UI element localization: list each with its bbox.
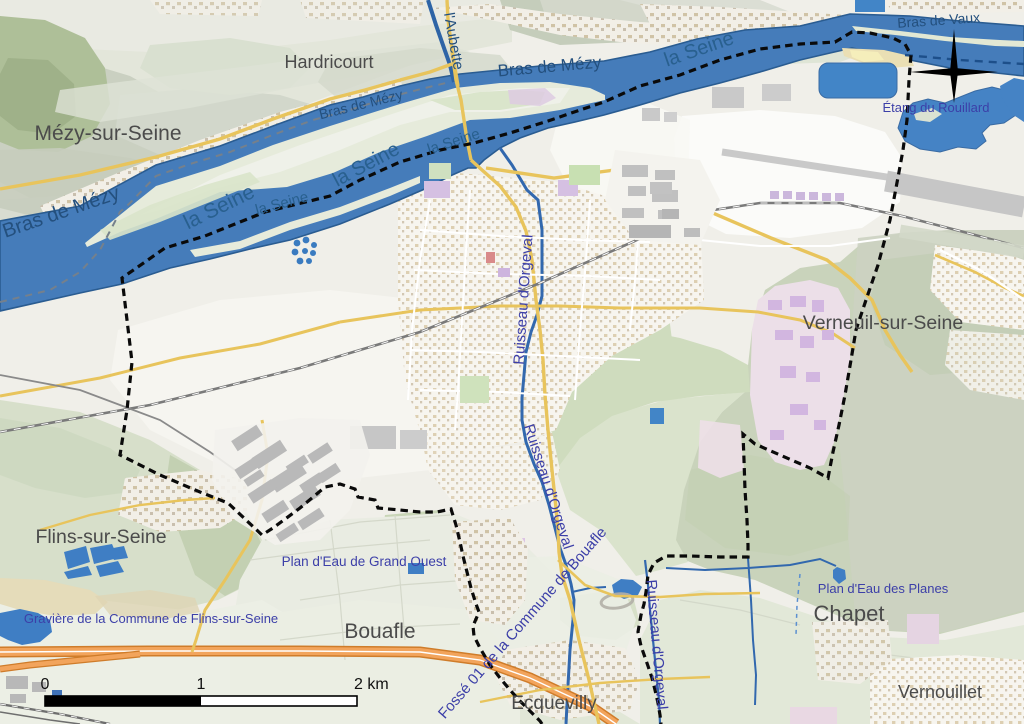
svg-text:Ecquevilly: Ecquevilly xyxy=(511,693,597,714)
svg-text:Étang du Rouillard: Étang du Rouillard xyxy=(883,100,990,115)
svg-text:Flins-sur-Seine: Flins-sur-Seine xyxy=(35,526,166,548)
svg-text:Vernouillet: Vernouillet xyxy=(898,682,982,702)
svg-text:Plan d'Eau des Planes: Plan d'Eau des Planes xyxy=(818,581,949,596)
svg-text:Hardricourt: Hardricourt xyxy=(284,52,373,72)
svg-text:Mézy-sur-Seine: Mézy-sur-Seine xyxy=(34,122,181,145)
svg-text:Plan d'Eau de Grand Ouest: Plan d'Eau de Grand Ouest xyxy=(282,554,447,569)
svg-text:1: 1 xyxy=(197,676,206,693)
svg-text:0: 0 xyxy=(41,676,50,693)
svg-text:Chapet: Chapet xyxy=(814,601,885,626)
svg-text:Verneuil-sur-Seine: Verneuil-sur-Seine xyxy=(803,312,963,334)
svg-text:2 km: 2 km xyxy=(354,676,389,693)
svg-text:Bouafle: Bouafle xyxy=(344,620,415,643)
svg-text:Gravière de la Commune de Flin: Gravière de la Commune de Flins-sur-Sein… xyxy=(24,611,278,626)
